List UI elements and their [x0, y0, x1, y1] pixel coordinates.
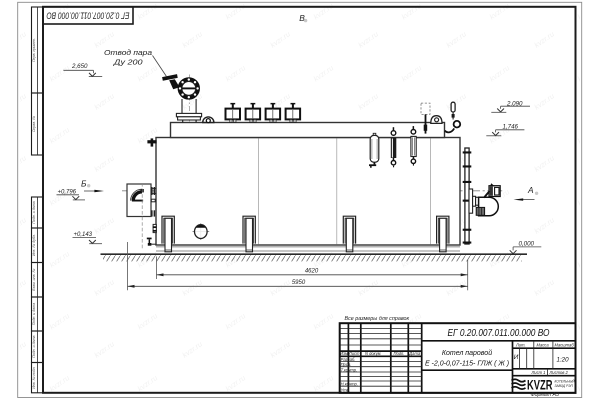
- svg-text:Утв.: Утв.: [341, 387, 350, 392]
- svg-text:ЕГ 0.20.007.011.00.000 ВО: ЕГ 0.20.007.011.00.000 ВО: [46, 10, 129, 20]
- svg-text:4620: 4620: [305, 268, 319, 274]
- svg-text:Формат А3: Формат А3: [531, 392, 559, 398]
- svg-text:А: А: [527, 185, 534, 195]
- svg-text:Инв. № дубл.: Инв. № дубл.: [32, 234, 36, 256]
- svg-text:Е -2,0-0,07-115- ГЛЖ ( Ж ): Е -2,0-0,07-115- ГЛЖ ( Ж ): [425, 360, 509, 367]
- svg-text:5950: 5950: [292, 280, 306, 286]
- svg-text:Дата: Дата: [408, 351, 421, 356]
- svg-text:Пров.: Пров.: [341, 362, 352, 367]
- svg-text:2,650: 2,650: [71, 63, 88, 70]
- svg-text:Перв. примен.: Перв. примен.: [32, 38, 36, 62]
- svg-text:Т.контр.: Т.контр.: [341, 367, 358, 372]
- svg-text:Н.контр.: Н.контр.: [341, 382, 358, 387]
- svg-text:Масса: Масса: [537, 343, 550, 348]
- svg-text:1:20: 1:20: [557, 357, 570, 364]
- svg-text:Лит.: Лит.: [515, 343, 526, 348]
- svg-text:Инв. № подл.: Инв. № подл.: [32, 366, 36, 388]
- svg-text:ЕГ 0.20.007.011.00.000 ВО: ЕГ 0.20.007.011.00.000 ВО: [448, 328, 550, 339]
- svg-text:Справ. №: Справ. №: [32, 116, 36, 132]
- svg-text:Подп. и дата: Подп. и дата: [32, 303, 36, 326]
- svg-text:Подп.: Подп.: [394, 351, 405, 356]
- svg-text:N докум.: N докум.: [365, 351, 382, 356]
- svg-text:Масштаб: Масштаб: [555, 343, 575, 348]
- svg-text:Взам. инв. №: Взам. инв. №: [32, 268, 36, 290]
- svg-text:Котел паровой: Котел паровой: [442, 349, 492, 357]
- svg-text:Листов 2: Листов 2: [549, 370, 569, 375]
- svg-text:Подп. и дата: Подп. и дата: [32, 201, 36, 224]
- svg-text:ЗАВОД РЭП: ЗАВОД РЭП: [555, 384, 574, 388]
- svg-text:Отвод пара: Отвод пара: [104, 48, 152, 57]
- svg-text:И: И: [514, 354, 519, 361]
- svg-text:Все размеры для справок: Все размеры для справок: [345, 316, 410, 322]
- svg-text:Изм.Лист: Изм.Лист: [340, 351, 360, 356]
- svg-text:KVZR: KVZR: [527, 377, 553, 392]
- svg-text:Б: Б: [81, 178, 87, 188]
- svg-text:КОТЕЛЬНЫЙ: КОТЕЛЬНЫЙ: [555, 379, 576, 383]
- svg-text:Лист 1: Лист 1: [531, 370, 546, 375]
- svg-text:Подп. и дата: Подп. и дата: [32, 335, 36, 358]
- svg-text:Ду 200: Ду 200: [113, 58, 144, 67]
